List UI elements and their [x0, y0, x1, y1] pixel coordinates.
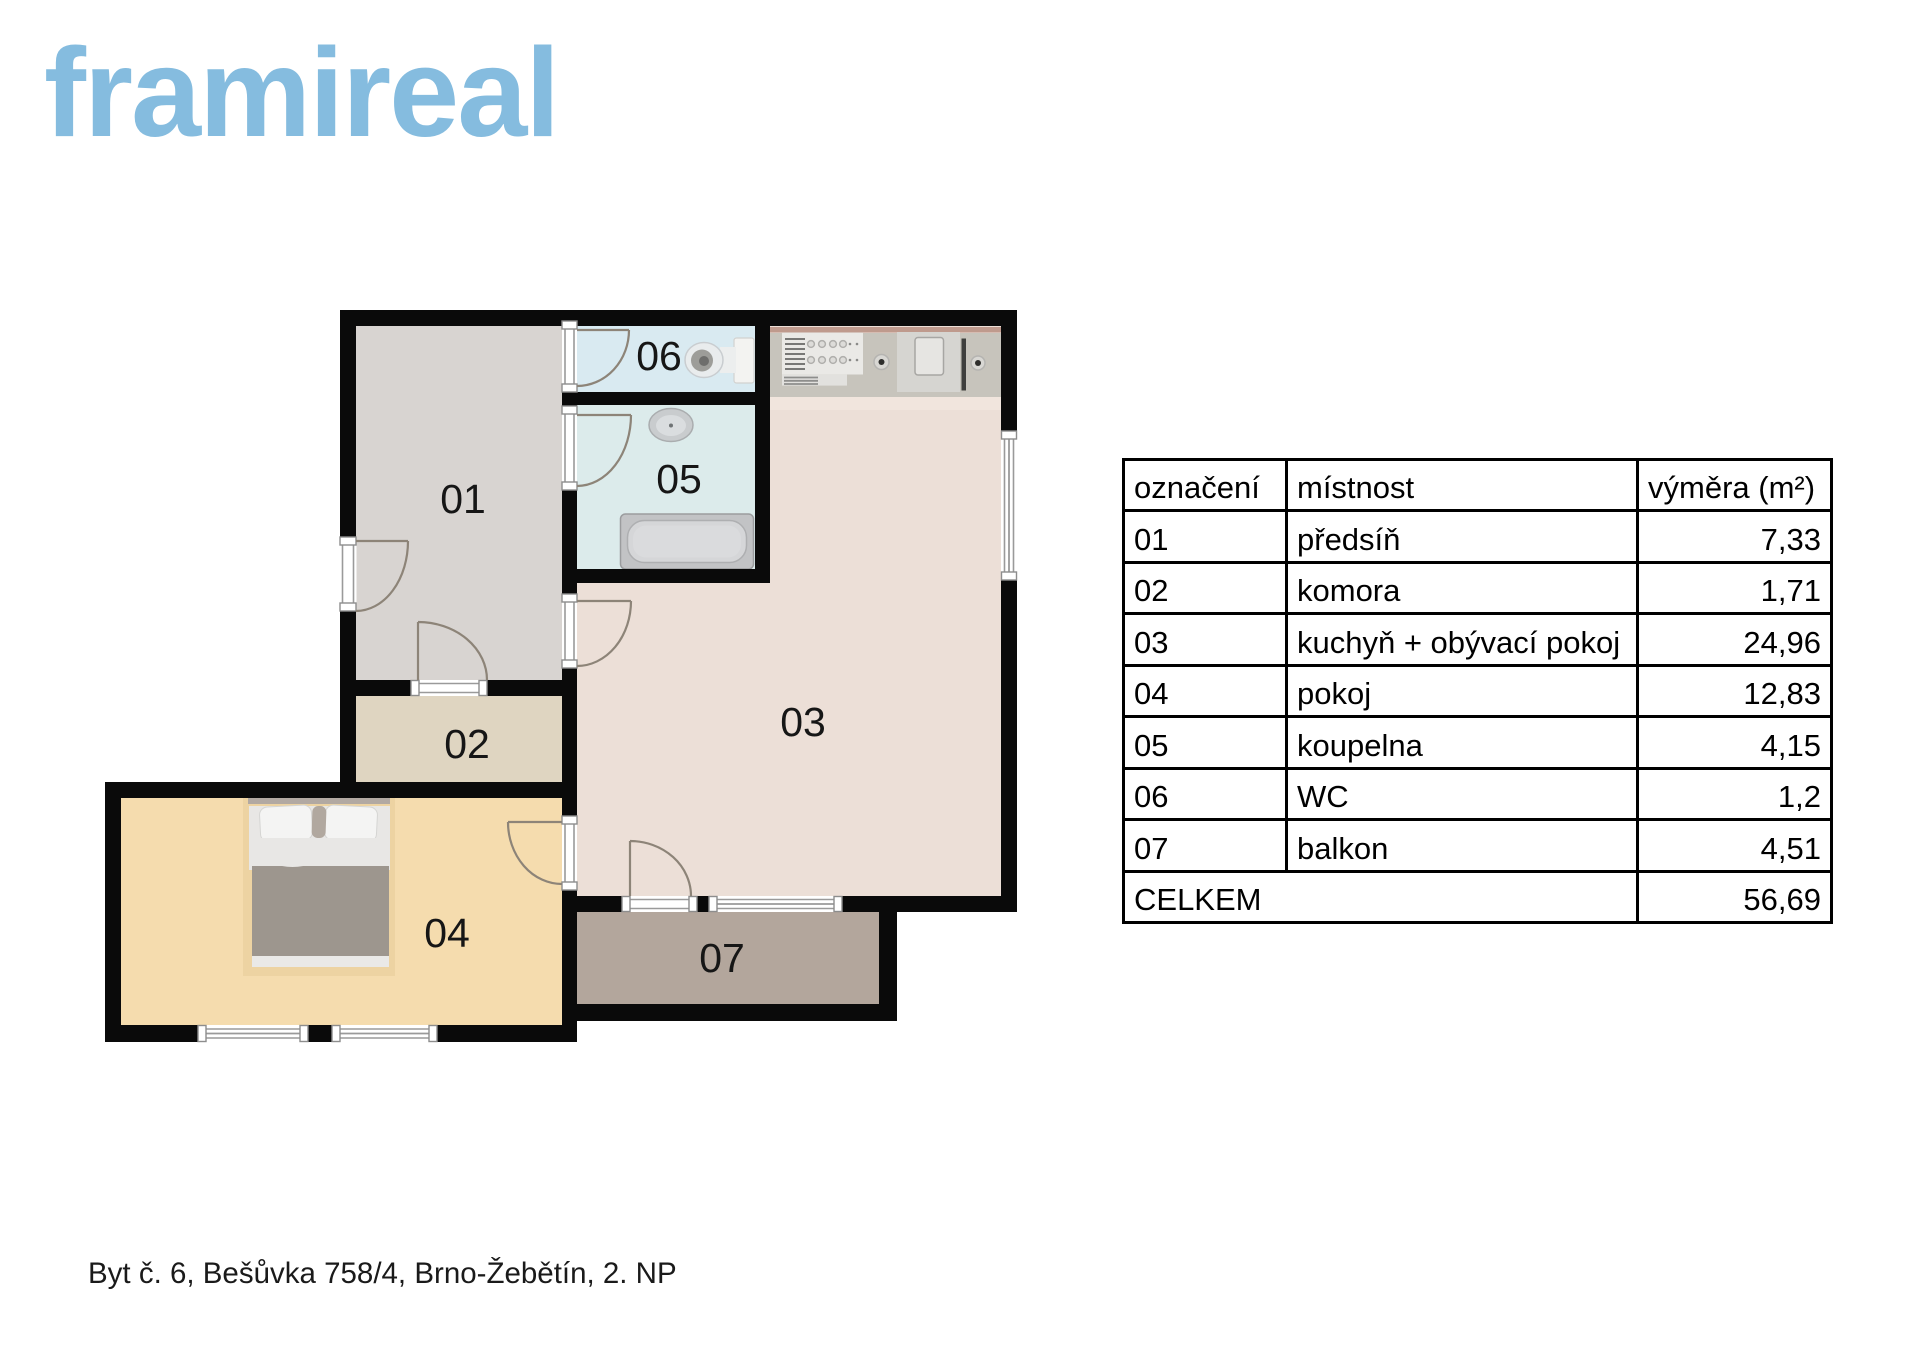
svg-text:02: 02	[444, 721, 490, 767]
svg-text:03: 03	[780, 699, 826, 745]
svg-text:01: 01	[440, 476, 486, 522]
svg-text:07: 07	[699, 935, 745, 981]
svg-text:05: 05	[656, 456, 702, 502]
svg-text:04: 04	[424, 910, 470, 956]
svg-text:06: 06	[636, 333, 682, 379]
